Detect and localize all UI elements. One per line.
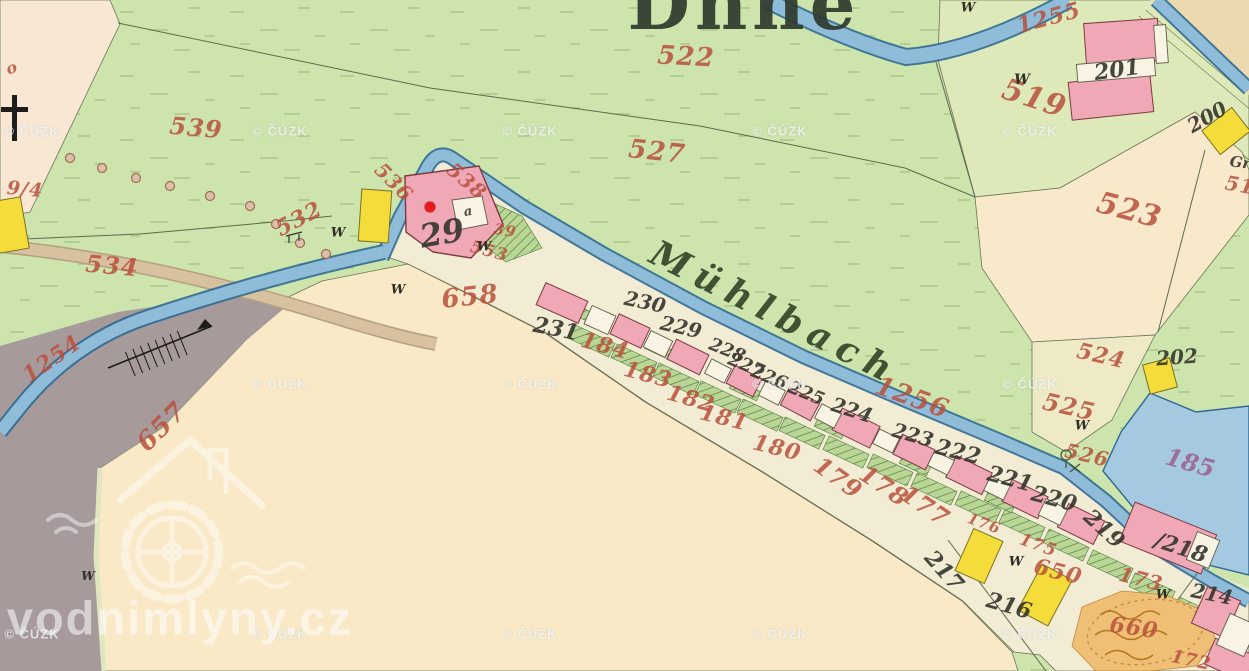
historical-map-canvas[interactable]: DnneMühlbach5225275195231255125412565395… bbox=[0, 0, 1249, 671]
meadow-symbol: W bbox=[1075, 420, 1090, 433]
cuzk-watermark: © ČÚZK bbox=[752, 377, 807, 392]
text-fragment-gr: Gr bbox=[1229, 154, 1249, 172]
parcel-number-534: 534 bbox=[85, 252, 140, 281]
place-name-fragment: Dnne bbox=[628, 0, 861, 40]
cuzk-watermark: © ČÚZK bbox=[252, 124, 307, 139]
mill-location-marker[interactable] bbox=[425, 202, 436, 213]
cuzk-watermark: © ČÚZK bbox=[502, 377, 557, 392]
parcel-number-660: 660 bbox=[1108, 614, 1160, 643]
parcel-number-fragment-51: 51 bbox=[1224, 173, 1249, 198]
meadow-symbol: W bbox=[961, 2, 976, 15]
parcel-number-539: 539 bbox=[169, 114, 224, 143]
meadow-symbol: W bbox=[477, 241, 492, 254]
meadow-symbol: W bbox=[391, 284, 406, 297]
meadow-symbol: W bbox=[331, 227, 346, 240]
parcel-number-39: 39 bbox=[492, 222, 517, 241]
house-number-201: 201 bbox=[1093, 56, 1142, 84]
parcel-number-658: 658 bbox=[440, 281, 500, 313]
vodnimlyny-watermark: vodnimlyny.cz bbox=[7, 591, 353, 646]
meadow-symbol: W bbox=[1009, 556, 1024, 569]
house-number-202: 202 bbox=[1155, 346, 1198, 369]
cuzk-watermark: © ČÚZK bbox=[752, 627, 807, 642]
cuzk-watermark: © ČÚZK bbox=[252, 377, 307, 392]
cuzk-watermark: © ČÚZK bbox=[502, 124, 557, 139]
cuzk-watermark: © ČÚZK bbox=[1002, 377, 1057, 392]
house-number-29: 29 bbox=[417, 213, 466, 252]
parcel-number-522: 522 bbox=[657, 43, 716, 72]
cuzk-watermark: © ČÚZK bbox=[502, 627, 557, 642]
parcel-number-fragment-94: 9/4 bbox=[6, 179, 44, 201]
meadow-symbol: W bbox=[81, 570, 94, 582]
meadow-symbol: W bbox=[1156, 589, 1171, 602]
meadow-symbol: W bbox=[1014, 73, 1030, 87]
cuzk-watermark: © ČÚZK bbox=[4, 124, 59, 139]
cuzk-watermark: © ČÚZK bbox=[1002, 124, 1057, 139]
cuzk-watermark: © ČÚZK bbox=[1002, 627, 1057, 642]
cuzk-watermark: © ČÚZK bbox=[752, 124, 807, 139]
parcel-number-527: 527 bbox=[627, 136, 687, 168]
